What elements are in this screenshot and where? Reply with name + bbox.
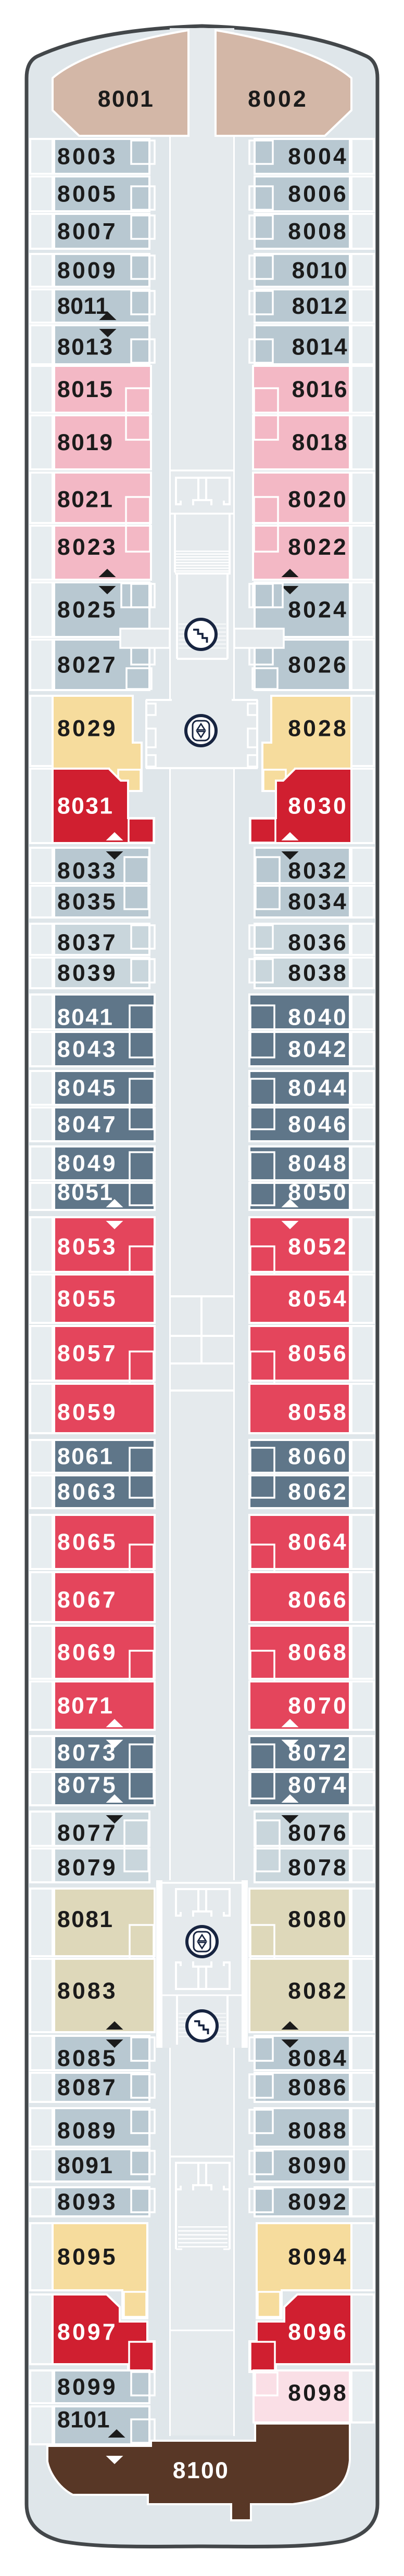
svg-text:8007: 8007 bbox=[57, 219, 118, 245]
svg-text:8063: 8063 bbox=[57, 1480, 118, 1505]
svg-text:8072: 8072 bbox=[288, 1740, 348, 1766]
svg-text:8045: 8045 bbox=[57, 1076, 118, 1101]
svg-text:8099: 8099 bbox=[57, 2375, 118, 2400]
svg-text:8052: 8052 bbox=[288, 1234, 348, 1260]
svg-text:8059: 8059 bbox=[57, 1400, 118, 1425]
svg-text:8048: 8048 bbox=[288, 1151, 348, 1177]
svg-text:8015: 8015 bbox=[57, 377, 113, 402]
svg-text:8056: 8056 bbox=[288, 1341, 348, 1367]
svg-text:8065: 8065 bbox=[57, 1529, 118, 1555]
svg-text:8081: 8081 bbox=[57, 1907, 113, 1932]
svg-text:8061: 8061 bbox=[57, 1444, 113, 1470]
svg-text:8057: 8057 bbox=[57, 1341, 118, 1367]
svg-text:8018: 8018 bbox=[292, 430, 348, 455]
svg-text:8100: 8100 bbox=[173, 2458, 229, 2483]
svg-text:8046: 8046 bbox=[288, 1112, 348, 1138]
svg-text:8024: 8024 bbox=[288, 597, 348, 623]
svg-text:8097: 8097 bbox=[57, 2319, 118, 2345]
svg-text:8051: 8051 bbox=[57, 1180, 113, 1205]
svg-text:8066: 8066 bbox=[288, 1587, 348, 1613]
svg-text:8050: 8050 bbox=[288, 1180, 348, 1205]
svg-text:8005: 8005 bbox=[57, 182, 118, 207]
svg-text:8009: 8009 bbox=[57, 258, 118, 284]
svg-text:8054: 8054 bbox=[288, 1286, 348, 1312]
svg-text:8021: 8021 bbox=[57, 487, 113, 513]
svg-text:8071: 8071 bbox=[57, 1693, 113, 1719]
svg-text:8101: 8101 bbox=[57, 2407, 110, 2433]
svg-text:8049: 8049 bbox=[57, 1151, 118, 1177]
svg-text:8060: 8060 bbox=[288, 1444, 348, 1470]
svg-text:8037: 8037 bbox=[57, 930, 118, 955]
svg-text:8068: 8068 bbox=[288, 1640, 348, 1665]
svg-text:8077: 8077 bbox=[57, 1820, 118, 1846]
svg-text:8044: 8044 bbox=[288, 1076, 348, 1101]
svg-text:8078: 8078 bbox=[288, 1855, 348, 1881]
svg-text:8019: 8019 bbox=[57, 430, 113, 455]
svg-text:8022: 8022 bbox=[288, 534, 348, 560]
svg-text:8042: 8042 bbox=[288, 1037, 348, 1062]
svg-text:8020: 8020 bbox=[288, 487, 348, 513]
svg-text:8090: 8090 bbox=[288, 2153, 348, 2178]
svg-text:8082: 8082 bbox=[288, 1979, 348, 2004]
svg-text:8014: 8014 bbox=[292, 335, 348, 360]
svg-text:8083: 8083 bbox=[57, 1979, 118, 2004]
svg-text:8089: 8089 bbox=[57, 2118, 118, 2144]
svg-text:8075: 8075 bbox=[57, 1772, 118, 1798]
svg-text:8029: 8029 bbox=[57, 716, 118, 742]
svg-text:8026: 8026 bbox=[288, 653, 348, 678]
svg-text:8084: 8084 bbox=[288, 2046, 348, 2071]
svg-text:8080: 8080 bbox=[288, 1907, 348, 1932]
svg-text:8093: 8093 bbox=[57, 2189, 118, 2215]
svg-text:8086: 8086 bbox=[288, 2075, 348, 2100]
svg-text:8034: 8034 bbox=[288, 889, 348, 915]
svg-text:8079: 8079 bbox=[57, 1855, 118, 1881]
svg-text:8008: 8008 bbox=[288, 219, 348, 245]
svg-text:8088: 8088 bbox=[288, 2118, 348, 2144]
svg-text:8016: 8016 bbox=[292, 377, 348, 402]
svg-text:8085: 8085 bbox=[57, 2046, 118, 2071]
svg-text:8076: 8076 bbox=[288, 1820, 348, 1846]
svg-text:8013: 8013 bbox=[57, 335, 113, 360]
svg-text:8041: 8041 bbox=[57, 1005, 113, 1030]
svg-text:8035: 8035 bbox=[57, 889, 118, 915]
svg-text:8043: 8043 bbox=[57, 1037, 118, 1062]
svg-text:8062: 8062 bbox=[288, 1480, 348, 1505]
svg-text:8028: 8028 bbox=[288, 716, 348, 742]
svg-text:8002: 8002 bbox=[248, 86, 308, 112]
svg-text:8087: 8087 bbox=[57, 2075, 118, 2100]
svg-text:8011: 8011 bbox=[57, 294, 109, 319]
svg-text:8040: 8040 bbox=[288, 1005, 348, 1030]
svg-text:8001: 8001 bbox=[98, 86, 154, 112]
svg-text:8058: 8058 bbox=[288, 1400, 348, 1425]
svg-text:8006: 8006 bbox=[288, 182, 348, 207]
svg-text:8036: 8036 bbox=[288, 930, 348, 955]
svg-text:8025: 8025 bbox=[57, 597, 118, 623]
svg-text:8031: 8031 bbox=[57, 794, 113, 819]
svg-text:8033: 8033 bbox=[57, 858, 118, 884]
svg-text:8091: 8091 bbox=[57, 2153, 113, 2178]
svg-text:8094: 8094 bbox=[288, 2245, 348, 2270]
svg-text:8032: 8032 bbox=[288, 858, 348, 884]
svg-text:8047: 8047 bbox=[57, 1112, 118, 1138]
svg-text:8004: 8004 bbox=[288, 144, 348, 170]
svg-text:8053: 8053 bbox=[57, 1234, 118, 1260]
svg-text:8064: 8064 bbox=[288, 1529, 348, 1555]
svg-text:8070: 8070 bbox=[288, 1693, 348, 1719]
svg-text:8023: 8023 bbox=[57, 534, 118, 560]
svg-text:8003: 8003 bbox=[57, 144, 118, 170]
svg-text:8067: 8067 bbox=[57, 1587, 118, 1613]
svg-text:8092: 8092 bbox=[288, 2189, 348, 2215]
svg-text:8030: 8030 bbox=[288, 794, 348, 819]
svg-text:8098: 8098 bbox=[288, 2380, 348, 2406]
svg-text:8074: 8074 bbox=[288, 1772, 348, 1798]
svg-text:8055: 8055 bbox=[57, 1286, 118, 1312]
svg-text:8027: 8027 bbox=[57, 653, 118, 678]
svg-text:8012: 8012 bbox=[292, 294, 348, 319]
svg-text:8010: 8010 bbox=[292, 258, 348, 284]
svg-text:8096: 8096 bbox=[288, 2319, 348, 2345]
svg-text:8038: 8038 bbox=[288, 961, 348, 986]
svg-text:8069: 8069 bbox=[57, 1640, 118, 1665]
svg-text:8073: 8073 bbox=[57, 1740, 118, 1766]
svg-text:8039: 8039 bbox=[57, 961, 118, 986]
svg-text:8095: 8095 bbox=[57, 2245, 118, 2270]
